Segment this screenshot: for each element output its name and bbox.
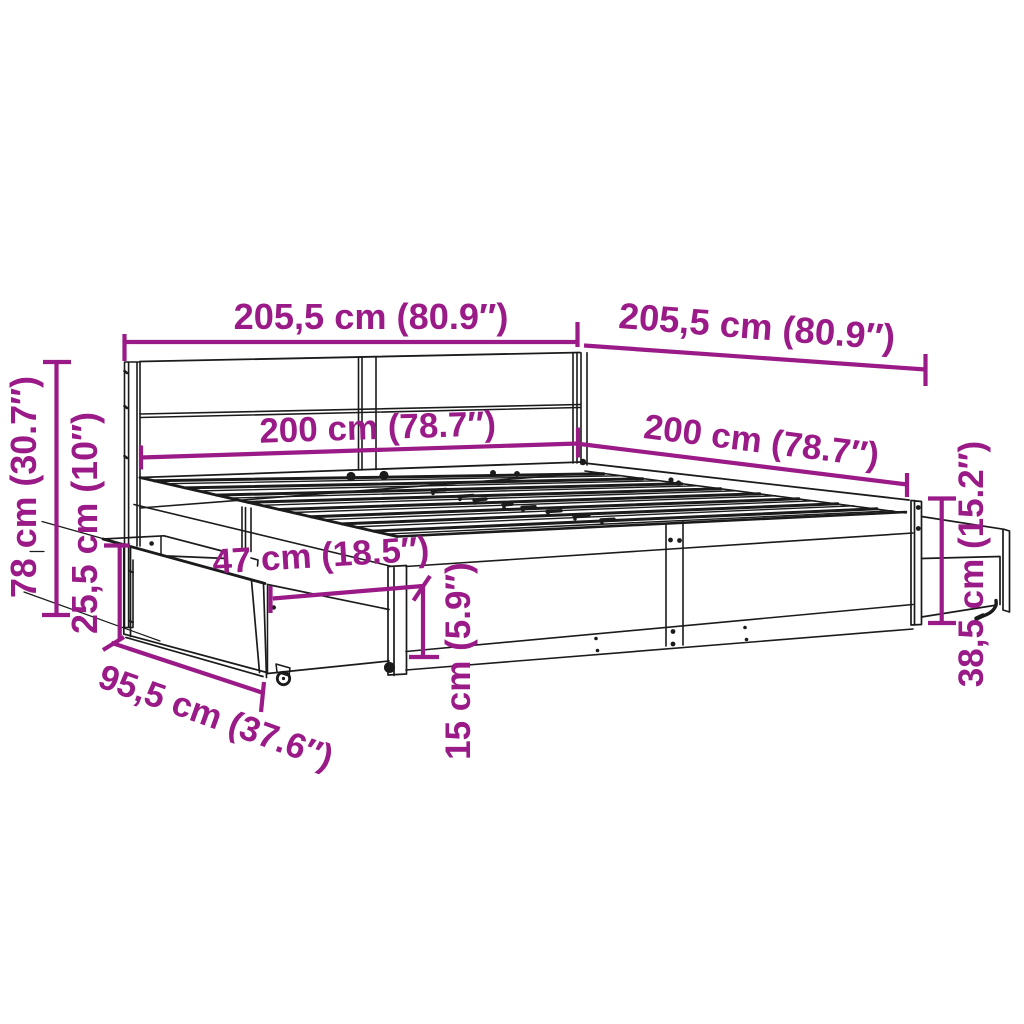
svg-text:15 cm (5.9″): 15 cm (5.9″)	[439, 562, 478, 760]
svg-text:25,5 cm (10″): 25,5 cm (10″)	[65, 412, 105, 634]
svg-text:205,5 cm (80.9″): 205,5 cm (80.9″)	[234, 296, 509, 337]
svg-text:78 cm (30.7″): 78 cm (30.7″)	[4, 376, 44, 598]
svg-text:200 cm (78.7″): 200 cm (78.7″)	[259, 404, 497, 450]
svg-text:38,5 cm (15.2″): 38,5 cm (15.2″)	[952, 441, 991, 687]
